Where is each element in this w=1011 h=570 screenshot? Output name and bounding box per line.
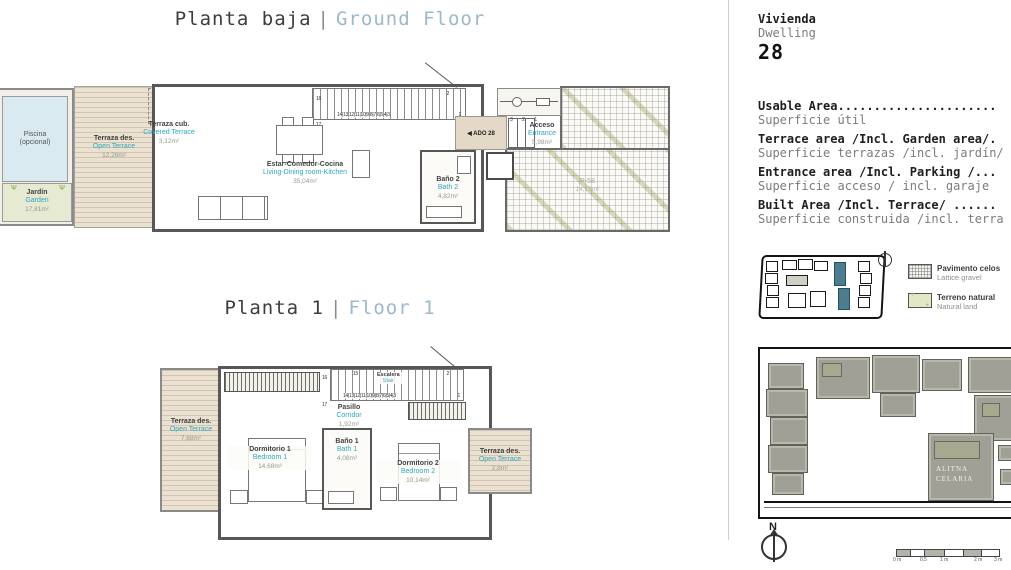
floor1-stair-label: Escalera Stair [375,372,402,384]
floor1-title: Planta 1|Floor 1 [130,297,530,319]
scale-labels: 0 m 0,5 1 m 2 m 3 m [896,557,1006,565]
stair-number: 2 [447,91,449,97]
nightstand [440,487,457,501]
nightstand [230,490,248,504]
floor1-stairs-numbers: 14|13|12|11|10|9|8|7|6|5|4|3 [343,393,396,399]
corridor-label: Pasillo Corridor 1,92m² [326,404,372,428]
legend-item-natural: + + Terreno natural Natural land [908,293,1000,311]
natural-land-swatch: + + [908,293,932,308]
dining-table [276,125,323,155]
pool-label: Piscina (opcional) [20,131,51,148]
stair-number: 15 [353,371,358,377]
title-separator: | [312,8,336,30]
entry-door-mat: ◀ ADO 28 [455,116,507,150]
site-plan-labels: ALITNA CELARIA [936,465,973,485]
stair-number: 16 [316,96,321,102]
scale-bar: 0 m 0,5 1 m 2 m 3 m [896,549,1000,557]
ground-open-terrace: Terraza des. Open Terrace 12,26m² [74,86,154,228]
floor1-terrace-left: Terraza des. Open Terrace 7,68m² [160,368,222,512]
bedroom2-label: Dormitorio 2 Bedroom 2 10,14m² [376,460,460,484]
bath1-room: Baño 1 Bath 1 4,08m² [322,428,372,510]
floor1-terrace-left-label: Terraza des. Open Terrace 7,68m² [162,418,220,442]
floor1-railing-right [408,402,466,420]
sink-counter [328,491,354,504]
legend-item-lattice: Pavimento celos Lattice gravel [908,264,1000,282]
bath2-room: Baño 2 Bath 2 4,82m² [420,150,476,224]
living-room-label: Estar-Comedor-Cocina Living-Dining room-… [250,161,360,185]
dwelling-label-es: Vivienda [758,12,816,26]
parking-area: P-58 14,13m² [505,148,670,232]
compass-needle-icon [770,529,778,535]
floor1-title-en: Floor 1 [348,297,435,319]
floor1-terrace-right-label: Terraza des. Open Terrace 2,8m² [470,448,530,472]
floor1-railing-top [224,372,320,392]
stair-number: 1 [458,393,460,399]
pool: Piscina (opcional) [2,96,68,182]
bedroom1-label: Dormitorio 1 Bedroom 1 14,68m² [228,446,312,470]
area-list: Usable Area...................... Superf… [758,99,1011,226]
keymap-highlight-building [834,262,846,286]
area-row: Terrace area /Incl. Garden area/. Superf… [758,132,1011,160]
compass-circle-icon [761,534,787,560]
site-key-map [758,253,900,319]
parking-label: P-58 14,13m² [507,178,668,194]
compass: N [758,521,788,533]
storage-box [486,152,514,180]
ground-floor-title: Planta baja|Ground Floor [130,8,530,30]
dwelling-label-en: Dwelling [758,26,816,40]
title-separator: | [324,297,348,319]
garden: Ψ Ψ Jardín Garden 17,81m² [2,183,72,222]
lattice-swatch [908,264,932,279]
road-line [764,501,1011,503]
door-label: ◀ ADO 28 [467,130,495,137]
covered-terrace-label: Terraza cub. Covered Terrace 3,12m² [138,121,200,145]
bath1-label: Baño 1 Bath 1 4,08m² [324,438,370,462]
gate-drawing [497,88,561,116]
floorplan-sheet: { "titles": { "ground": {"es": "Planta b… [0,0,1011,570]
area-row: Built Area /Incl. Terrace/ ...... Superf… [758,198,1011,226]
road-line2 [764,507,1011,508]
ground-floor-title-en: Ground Floor [336,8,485,30]
entrance-label: Acceso Entrance 5,98m² [518,122,566,146]
front-court [560,86,670,150]
bath2-label: Baño 2 Bath 2 4,82m² [422,176,474,200]
ground-stairs-numbers: 14|13|12|11|10|9|8|7|6|5|4|3 [337,112,390,118]
dwelling-number: 28 [758,40,816,64]
stair-number: 2 [447,371,449,377]
area-row: Entrance area /Incl. Parking /... Superf… [758,165,1011,193]
site-plan: ALITNA CELARIA [758,347,1011,519]
chair [302,117,314,126]
gate-latch [536,98,550,106]
nightstand [380,487,397,501]
area-row: Usable Area...................... Superf… [758,99,1011,127]
floor1-stairs: 14|13|12|11|10|9|8|7|6|5|4|3 15 16 17 2 … [330,369,464,401]
keymap-building-gray [786,275,808,286]
chair [282,117,294,126]
legend: Pavimento celos Lattice gravel + + Terre… [908,264,1000,311]
floor1-terrace-right: Terraza des. Open Terrace 2,8m² [468,428,532,494]
keymap-highlight-building [838,288,850,310]
scale-segments [896,549,1000,557]
gate-post-icon [512,97,522,107]
dwelling-block: Vivienda Dwelling 28 [758,12,816,64]
sofa [198,196,268,220]
keymap-compass-icon [878,253,892,267]
ground-stairs: 14|13|12|11|10|9|8|7|6|5|4|3 16 17 2 1 [312,88,466,120]
stair-number: 16 [322,375,327,381]
floor1-title-es: Planta 1 [224,297,324,319]
toilet [457,156,471,174]
ground-floor-title-es: Planta baja [175,8,312,30]
sink-counter [426,206,462,218]
garden-label: Jardín Garden 17,81m² [3,189,71,213]
panel-divider [728,0,729,540]
